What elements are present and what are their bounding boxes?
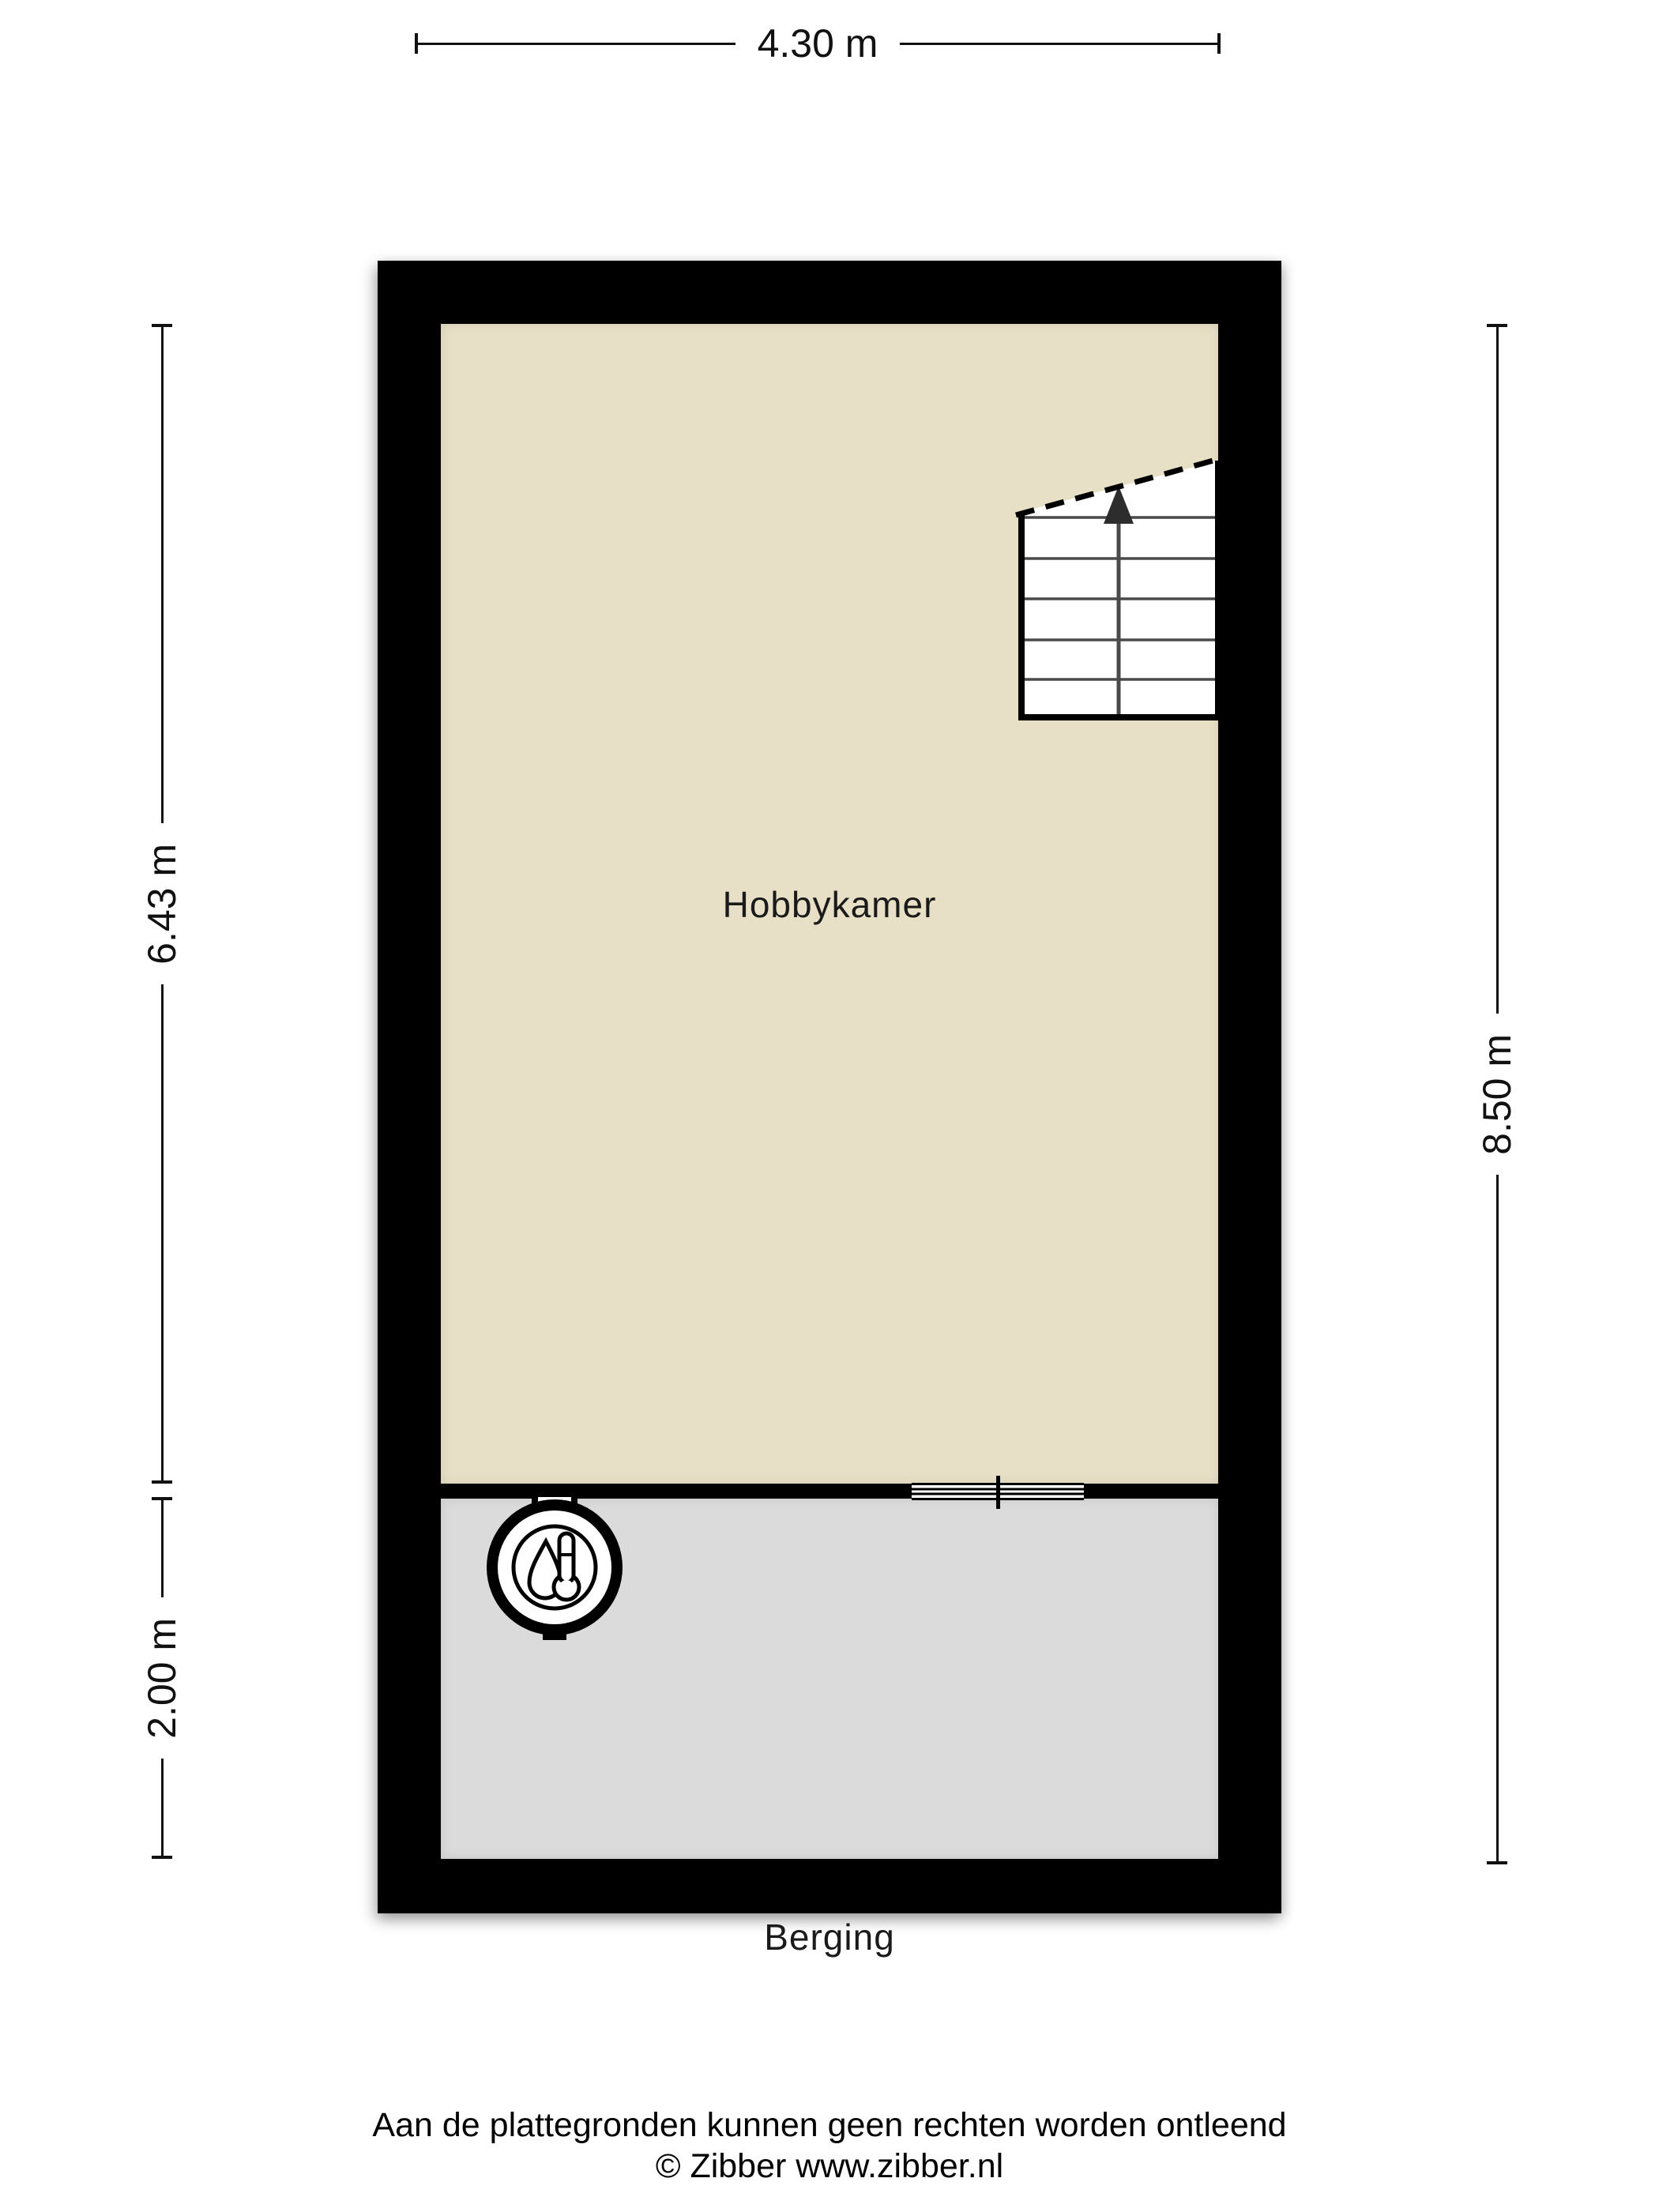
dimension-line xyxy=(1496,327,1499,1014)
floorplan-page: { "plan": { "type": "floorplan", "rooms"… xyxy=(0,0,1659,2212)
staircase xyxy=(1015,454,1221,723)
dimension-cap xyxy=(152,1480,172,1484)
room-label-berging: Berging xyxy=(441,1916,1218,1958)
floorplan: Hobbykamer Berging xyxy=(378,261,1281,1913)
room-label-hobbykamer: Hobbykamer xyxy=(441,883,1218,926)
dimension-top: 4.30 m xyxy=(415,24,1221,62)
boiler-icon xyxy=(478,1492,632,1650)
dimension-line xyxy=(1496,1175,1499,1861)
footer-copyright: © Zibber www.zibber.nl xyxy=(0,2146,1659,2187)
dimension-cap xyxy=(1487,1861,1507,1864)
dimension-line xyxy=(161,984,164,1480)
dimension-line xyxy=(161,1500,164,1597)
thermometer-icon xyxy=(554,1533,579,1600)
dimension-line xyxy=(161,327,164,823)
dimension-right: 8.50 m xyxy=(1487,324,1507,1864)
dimension-label-left-upper: 6.43 m xyxy=(139,823,185,985)
dimension-line xyxy=(161,1759,164,1856)
sliding-door xyxy=(912,1475,1085,1510)
dimension-cap xyxy=(152,1856,172,1859)
dimension-label-left-lower: 2.00 m xyxy=(139,1597,185,1759)
dimension-left-lower: 2.00 m xyxy=(152,1497,172,1859)
dimension-cap xyxy=(1217,33,1221,54)
footer: Aan de plattegronden kunnen geen rechten… xyxy=(0,2105,1659,2187)
dimension-line xyxy=(418,43,735,45)
dimension-left-upper: 6.43 m xyxy=(152,324,172,1484)
dimension-label-width: 4.30 m xyxy=(735,21,901,66)
footer-disclaimer: Aan de plattegronden kunnen geen rechten… xyxy=(0,2105,1659,2146)
dimension-label-right: 8.50 m xyxy=(1474,1014,1520,1176)
dimension-line xyxy=(900,43,1217,45)
